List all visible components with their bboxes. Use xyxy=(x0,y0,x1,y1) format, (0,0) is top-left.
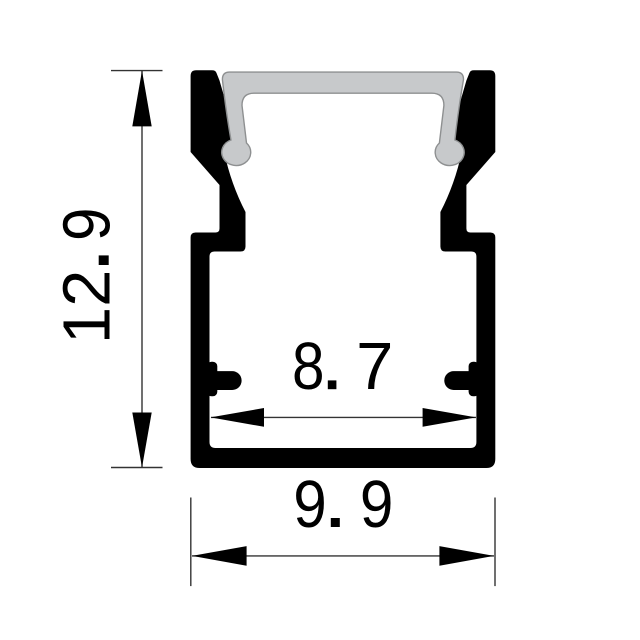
svg-text:7: 7 xyxy=(356,329,393,404)
svg-text:8: 8 xyxy=(292,329,325,404)
svg-text:9: 9 xyxy=(293,467,327,542)
svg-text:9: 9 xyxy=(360,467,394,542)
svg-text:1: 1 xyxy=(50,307,125,344)
svg-text:9: 9 xyxy=(50,208,125,242)
svg-text:2: 2 xyxy=(50,270,125,307)
